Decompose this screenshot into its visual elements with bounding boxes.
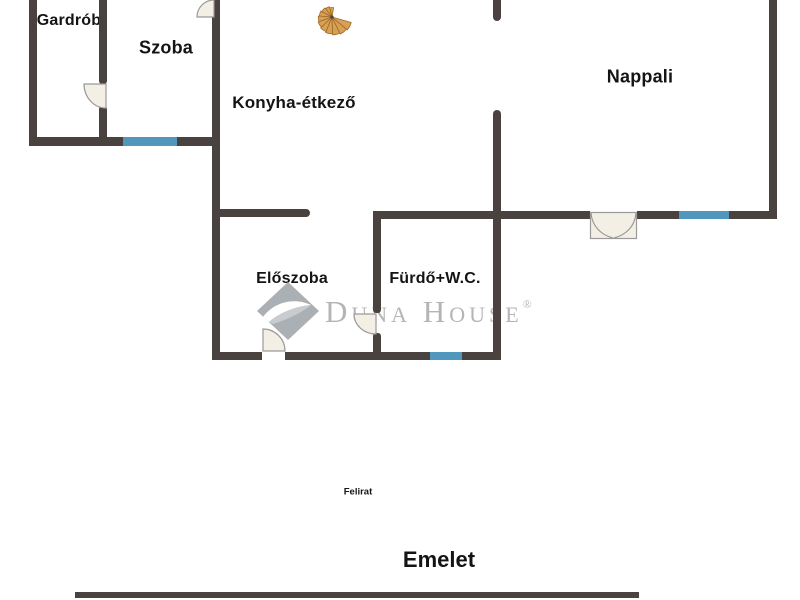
wall-gardrob-divider-top bbox=[99, 0, 107, 84]
wall-konyha-left bbox=[212, 0, 220, 360]
window-nappali bbox=[679, 211, 729, 219]
floor-title: Emelet bbox=[403, 547, 475, 573]
room-label-szoba: Szoba bbox=[139, 38, 193, 59]
room-label-gardrob: Gardrób bbox=[37, 12, 102, 30]
wall-bottom-mid bbox=[285, 352, 430, 360]
wall-furdo-left-top bbox=[373, 211, 381, 313]
room-label-nappali: Nappali bbox=[607, 67, 673, 88]
door-szoba-top bbox=[196, 0, 216, 18]
wall-eloszoba-top bbox=[212, 209, 310, 217]
wall-bottom-left bbox=[212, 352, 262, 360]
wall-hall-horizontal-left bbox=[373, 211, 590, 219]
wall-konyha-nappali-top bbox=[493, 0, 501, 21]
door-nappali-balcony bbox=[590, 212, 637, 241]
floorplan-canvas: Gardrób Szoba Konyha-étkező Nappali Elős… bbox=[0, 0, 800, 600]
wall-nappali-right bbox=[769, 0, 777, 219]
window-furdo bbox=[430, 352, 462, 360]
spiral-staircase-icon bbox=[301, 0, 355, 40]
room-label-eloszoba: Előszoba bbox=[256, 270, 328, 288]
wall-bottom-right bbox=[462, 352, 501, 360]
caption-label: Felirat bbox=[344, 487, 373, 498]
duna-house-watermark: Duna House® bbox=[256, 281, 532, 341]
wall-konyha-nappali-main bbox=[493, 110, 501, 360]
room-label-konyha: Konyha-étkező bbox=[232, 93, 356, 113]
door-furdo bbox=[353, 313, 377, 335]
room-label-furdo: Fürdő+W.C. bbox=[389, 270, 480, 288]
door-gardrob bbox=[84, 83, 107, 108]
floor-separator-line bbox=[75, 592, 639, 598]
window-szoba bbox=[123, 137, 177, 146]
wall-hall-horizontal-mid bbox=[637, 211, 679, 219]
door-eloszoba-entrance bbox=[262, 328, 287, 352]
wall-left-outer bbox=[29, 0, 37, 146]
